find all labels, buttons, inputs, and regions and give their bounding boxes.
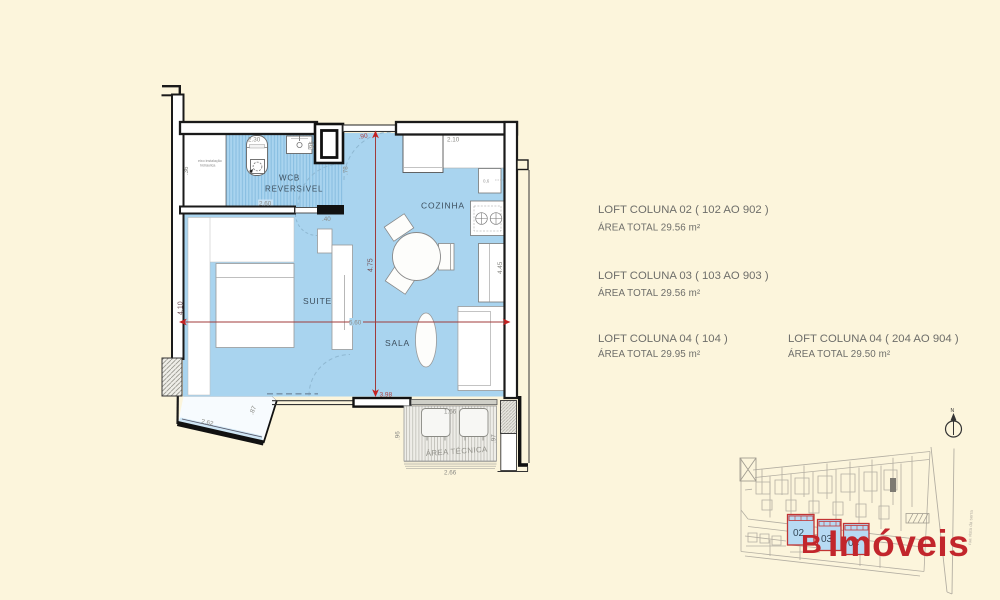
svg-text:eixo instalação: eixo instalação xyxy=(198,159,222,163)
svg-text:2.10: 2.10 xyxy=(447,137,460,144)
svg-text:LOFT COLUNA 04 ( 204 AO 904 ): LOFT COLUNA 04 ( 204 AO 904 ) xyxy=(788,333,959,345)
svg-text:.96: .96 xyxy=(395,431,402,440)
svg-text:5.60: 5.60 xyxy=(349,320,362,327)
svg-text:B: B xyxy=(801,529,822,559)
svg-text:2.66: 2.66 xyxy=(444,470,457,477)
svg-text:.40: .40 xyxy=(322,216,331,223)
svg-text:1.66: 1.66 xyxy=(444,409,457,416)
svg-text:4.10: 4.10 xyxy=(178,301,185,315)
svg-text:.78: .78 xyxy=(343,166,350,175)
svg-text:REVERSÍVEL: REVERSÍVEL xyxy=(265,185,323,194)
svg-text:3.98: 3.98 xyxy=(380,392,393,399)
svg-text:.97: .97 xyxy=(491,434,498,443)
svg-text:2.30: 2.30 xyxy=(248,137,261,144)
svg-text:WCB: WCB xyxy=(279,174,300,183)
svg-text:ÁREA TOTAL 29.56 m²: ÁREA TOTAL 29.56 m² xyxy=(598,223,701,234)
svg-text:LOFT COLUNA 03 ( 103 AO 903 ): LOFT COLUNA 03 ( 103 AO 903 ) xyxy=(598,270,769,282)
svg-text:ÁREA TOTAL 29.56 m²: ÁREA TOTAL 29.56 m² xyxy=(598,288,701,299)
svg-text:ÁREA TOTAL 29.95 m²: ÁREA TOTAL 29.95 m² xyxy=(598,349,701,360)
svg-text:LOFT COLUNA 04 ( 104 ): LOFT COLUNA 04 ( 104 ) xyxy=(598,333,728,345)
svg-text:N: N xyxy=(951,408,955,414)
svg-text:0,6: 0,6 xyxy=(483,179,490,184)
svg-text:4.45: 4.45 xyxy=(497,261,504,274)
svg-text:ÁREA TOTAL 29.50 m²: ÁREA TOTAL 29.50 m² xyxy=(788,349,891,360)
svg-text:SALA: SALA xyxy=(385,338,410,348)
svg-text:.36: .36 xyxy=(184,166,190,175)
svg-text:Imóveis: Imóveis xyxy=(828,523,969,564)
svg-text:LOFT COLUNA 02 ( 102 AO 902 ): LOFT COLUNA 02 ( 102 AO 902 ) xyxy=(598,204,769,216)
svg-text:COZINHA: COZINHA xyxy=(421,201,465,211)
svg-text:4.75: 4.75 xyxy=(368,258,375,272)
svg-text:hidráulica: hidráulica xyxy=(200,164,215,168)
svg-text:SUITE: SUITE xyxy=(303,296,332,306)
